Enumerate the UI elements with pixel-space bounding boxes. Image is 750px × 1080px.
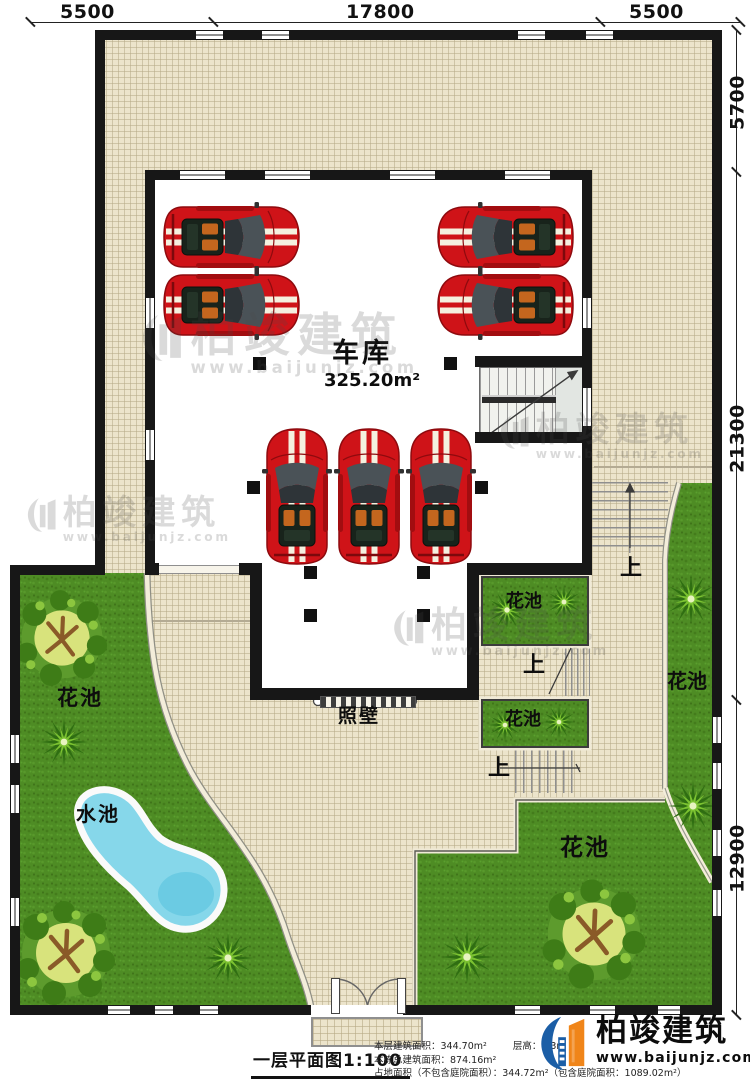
screen-wall-label: 照壁 <box>338 707 380 726</box>
up-label-1: 上 <box>620 558 642 580</box>
column <box>444 357 457 370</box>
fence-window <box>11 735 19 763</box>
flower-bed-label-bed2: 花池 <box>505 711 541 729</box>
water-pool-label: 水池 <box>76 804 120 824</box>
car-middle-3 <box>406 429 476 564</box>
site-wall-right <box>712 30 722 1015</box>
dim-right-1: 5700 <box>729 68 748 138</box>
car-top-left-2 <box>164 270 299 340</box>
stair-direction-arrow <box>487 371 577 436</box>
brand-logo: 柏竣建筑 www.baijunjz.com <box>536 1014 750 1072</box>
gate-leaf-right <box>397 978 406 1014</box>
garage-window <box>146 298 154 328</box>
column <box>417 566 430 579</box>
site-wall-top <box>95 30 722 40</box>
fence-window <box>155 1006 173 1014</box>
brand-logo-icon <box>536 1014 592 1072</box>
garage-wall-right <box>582 170 592 575</box>
brand-name: 柏竣建筑 <box>596 1014 750 1048</box>
site-wall-left-upper <box>95 30 105 575</box>
up-label-3: 上 <box>488 758 510 780</box>
garage-west-opening <box>159 565 239 574</box>
garage-wall-east-seg <box>467 563 592 575</box>
dim-right-2: 21300 <box>729 404 748 474</box>
fence-window <box>108 1006 130 1014</box>
fence-window <box>11 898 19 926</box>
dim-top-2: 17800 <box>346 3 415 22</box>
fence-window <box>200 1006 218 1014</box>
garage-window <box>265 171 310 179</box>
flower-bed-label-bed1: 花池 <box>506 593 542 611</box>
dim-top-3: 5500 <box>629 3 684 22</box>
car-top-left-1 <box>164 202 299 272</box>
garage-window <box>146 430 154 460</box>
fence-window <box>713 717 721 743</box>
fence-window <box>586 31 613 39</box>
fence-window <box>518 31 545 39</box>
fence-window <box>11 785 19 813</box>
garage-lower-wall-left <box>250 563 262 700</box>
fence-window <box>262 31 289 39</box>
stairwell-wall-top <box>475 356 585 367</box>
column <box>304 609 317 622</box>
column <box>475 481 488 494</box>
fence-window <box>713 763 721 789</box>
fence-window <box>515 1006 540 1014</box>
column <box>253 357 266 370</box>
car-middle-2 <box>334 429 404 564</box>
column <box>304 566 317 579</box>
gate-opening <box>311 1005 403 1015</box>
stairwell-wall-bottom <box>475 432 585 443</box>
flower-bed-label-right-strip: 花池 <box>667 671 707 691</box>
garage-window <box>583 298 591 328</box>
fence-window <box>713 890 721 916</box>
dim-right-3: 12900 <box>729 824 748 894</box>
gate-leaf-left <box>331 978 340 1014</box>
garage-window <box>390 171 435 179</box>
garage-window <box>583 388 591 426</box>
garage-label: 车库 <box>332 340 392 367</box>
car-middle-1 <box>262 429 332 564</box>
car-top-right-1 <box>438 202 573 272</box>
fence-window <box>713 830 721 856</box>
garage-lower-wall-right <box>467 563 479 700</box>
garage-area-label: 325.20m² <box>324 372 420 390</box>
flower-bed-label-left: 花池 <box>57 688 103 709</box>
column <box>247 481 260 494</box>
flower-bed-label-bottom: 花池 <box>560 837 610 860</box>
garage-wall-left <box>145 170 155 575</box>
car-top-right-2 <box>438 270 573 340</box>
fence-window <box>196 31 223 39</box>
landscape-layer <box>0 0 750 1080</box>
column <box>417 609 430 622</box>
brand-website: www.baijunjz.com <box>596 1050 750 1066</box>
up-label-2: 上 <box>523 655 545 677</box>
garage-window <box>180 171 225 179</box>
site-wall-connector <box>10 565 105 575</box>
garage-wall-sw-corner <box>145 563 159 575</box>
dim-top-1: 5500 <box>60 3 115 22</box>
garage-window <box>505 171 550 179</box>
floor-plan-page: 车库 325.20m² 照壁 花池 花池 花池 花池 花池 水池 上 上 上 5… <box>0 0 750 1080</box>
floor-area-text: 本层建筑面积：344.70m² <box>374 1041 487 1052</box>
